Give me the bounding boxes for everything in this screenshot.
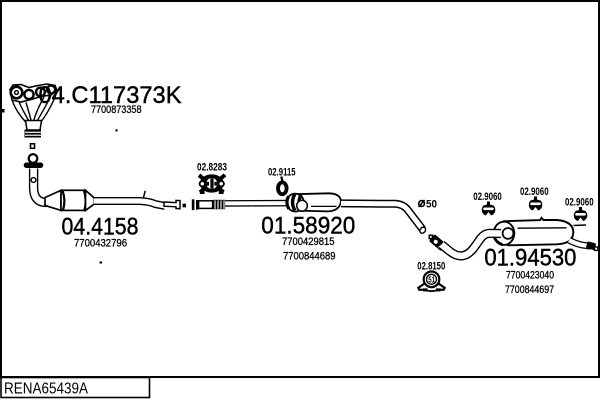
svg-text:RENA65439A: RENA65439A — [4, 380, 88, 397]
svg-text:02.9115: 02.9115 — [268, 166, 296, 178]
svg-text:50: 50 — [426, 199, 437, 211]
svg-text:02.9060: 02.9060 — [520, 186, 549, 198]
svg-text:7700429815: 7700429815 — [282, 236, 335, 248]
svg-text:7700873358: 7700873358 — [91, 104, 142, 116]
svg-text:51: 51 — [428, 275, 435, 284]
svg-text:02.8150: 02.8150 — [417, 261, 445, 273]
svg-text:7700423040: 7700423040 — [506, 269, 554, 281]
svg-text:7700432796: 7700432796 — [74, 237, 127, 249]
svg-text:02.8283: 02.8283 — [197, 162, 227, 174]
svg-text:7700844689: 7700844689 — [283, 251, 336, 263]
svg-text:7700844697: 7700844697 — [505, 284, 554, 296]
svg-text:02.9060: 02.9060 — [565, 197, 594, 209]
svg-text:01.94530: 01.94530 — [484, 245, 576, 272]
svg-text:02.9060: 02.9060 — [473, 191, 502, 203]
